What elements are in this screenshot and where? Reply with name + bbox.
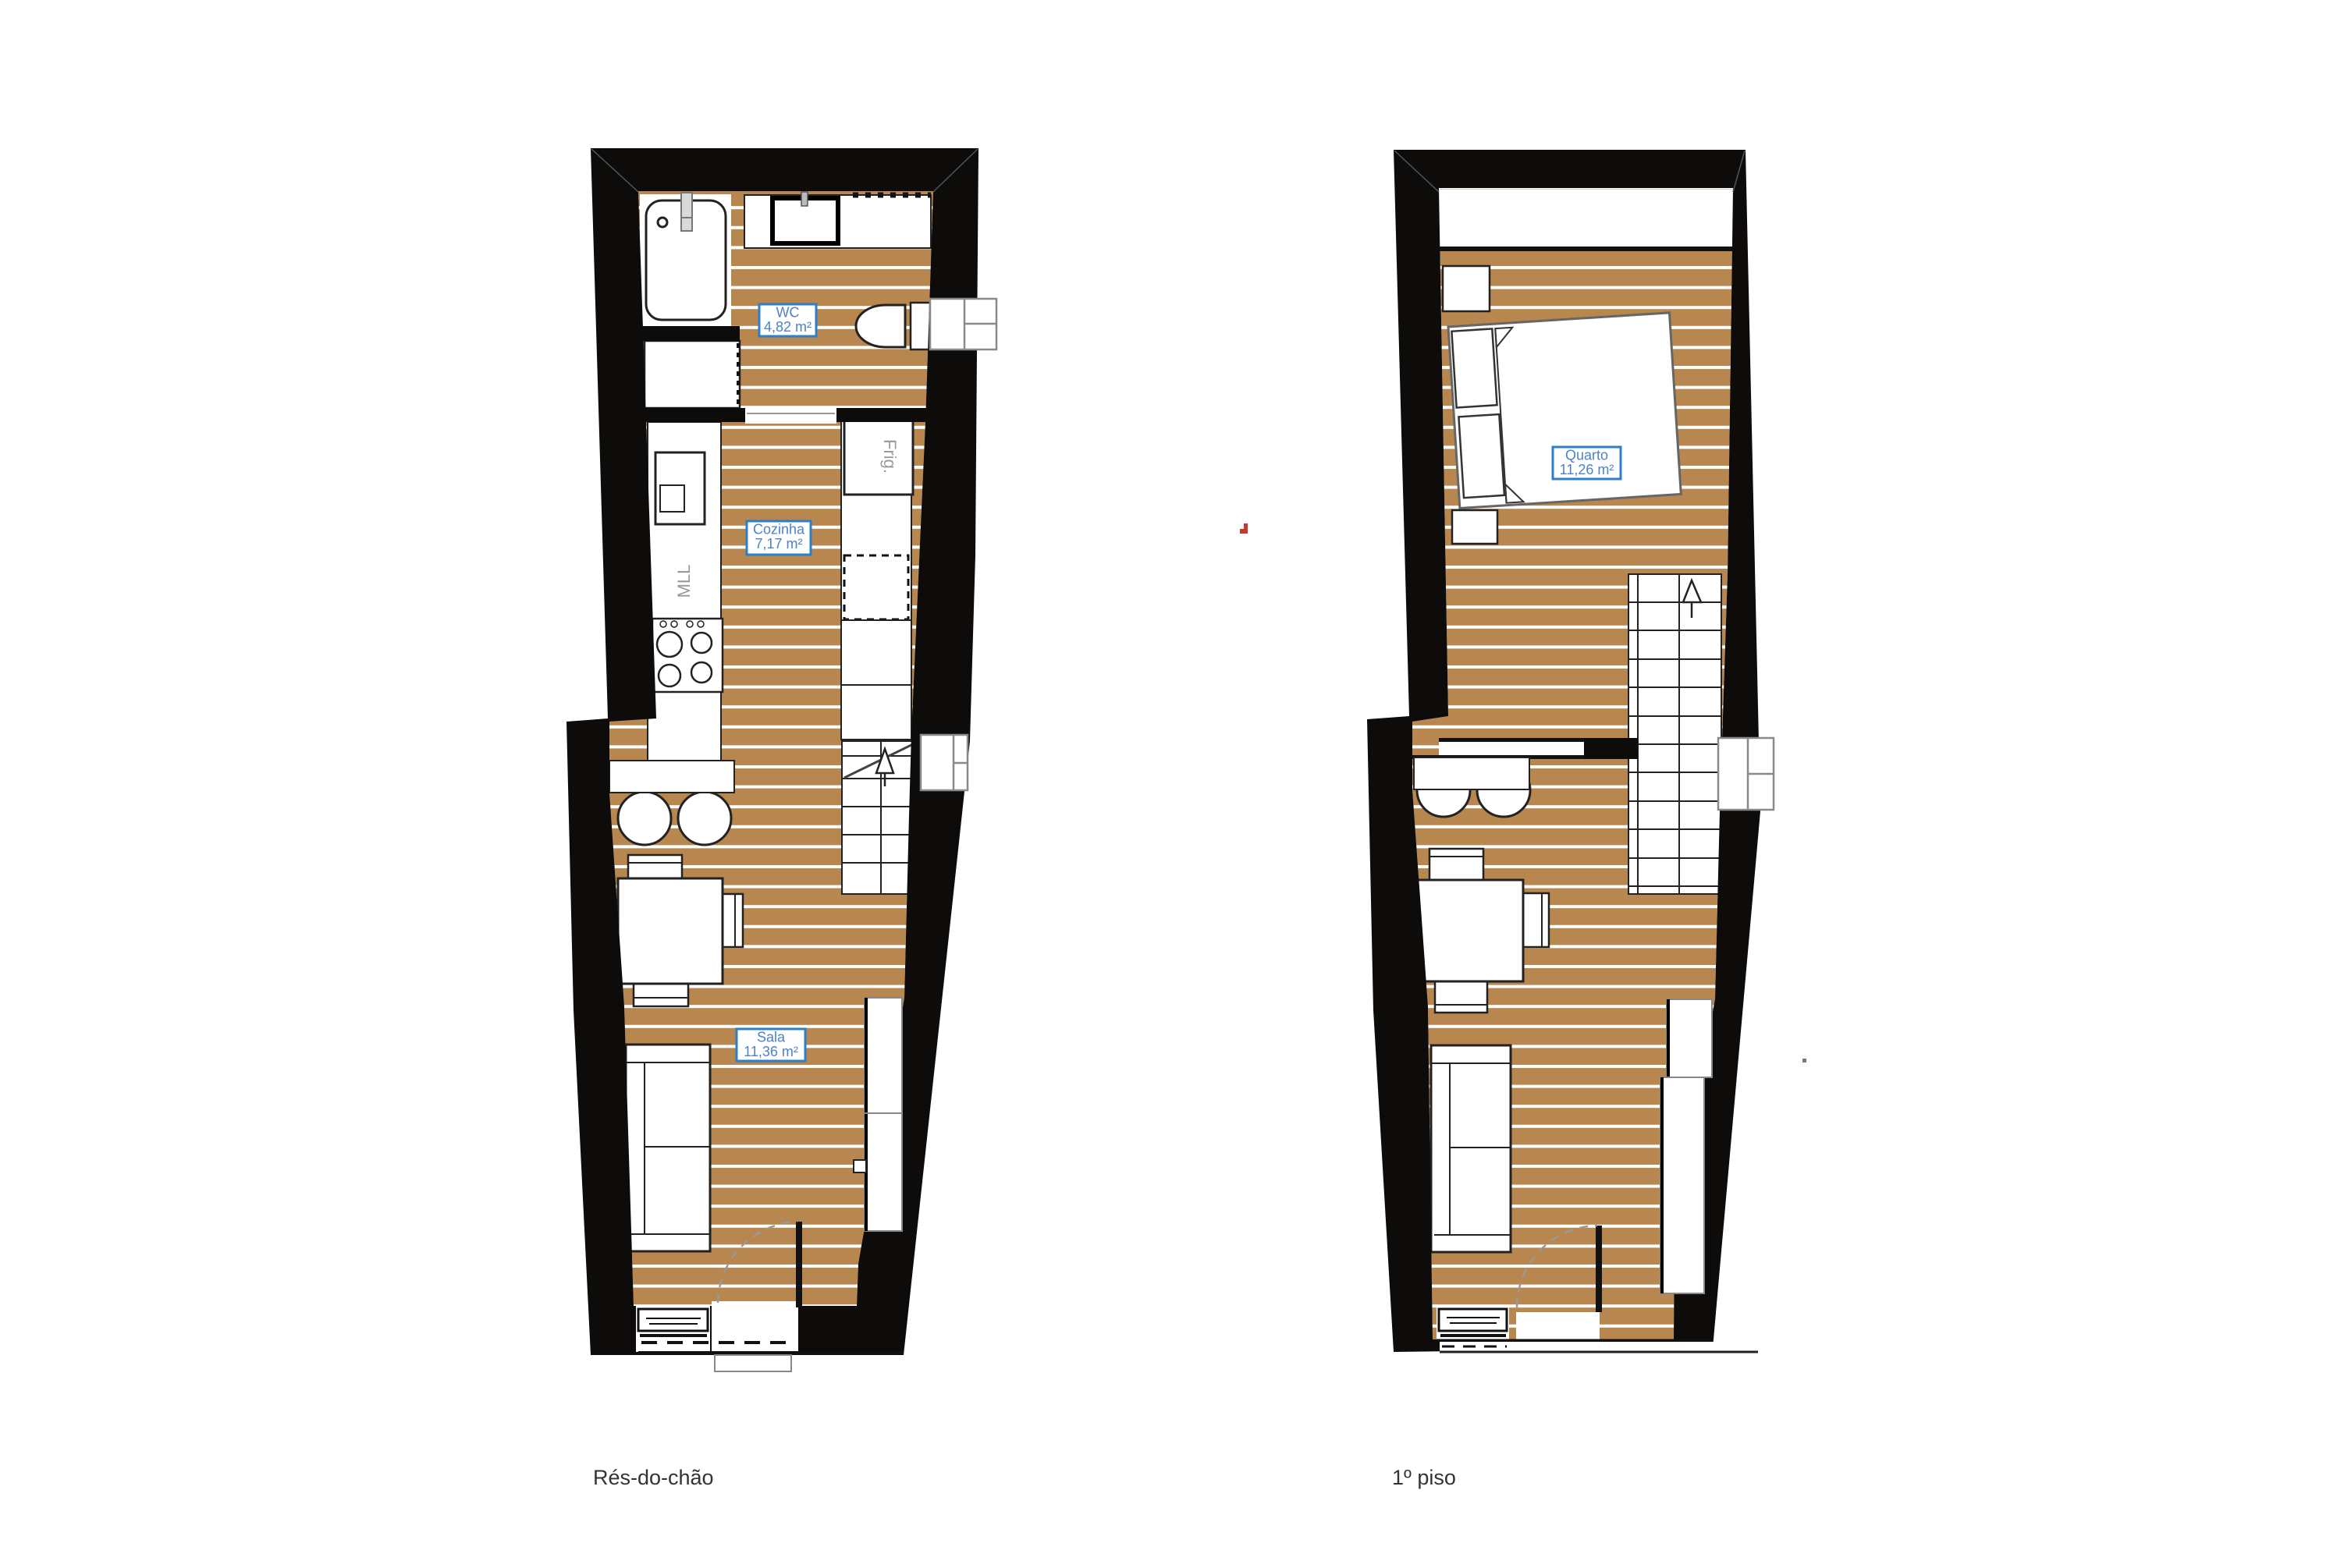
svg-text:7,17 m²: 7,17 m² xyxy=(755,536,802,552)
svg-text:1º piso: 1º piso xyxy=(1392,1466,1456,1489)
svg-text:Cozinha: Cozinha xyxy=(753,522,805,537)
svg-text:4,82 m²: 4,82 m² xyxy=(764,319,812,335)
svg-text:Quarto: Quarto xyxy=(1565,448,1608,463)
svg-text:11,36 m²: 11,36 m² xyxy=(744,1044,798,1059)
svg-text:Frig.: Frig. xyxy=(880,439,900,474)
svg-text:WC: WC xyxy=(776,305,800,321)
svg-text:MLL: MLL xyxy=(674,565,694,598)
svg-text:Rés-do-chão: Rés-do-chão xyxy=(593,1466,714,1489)
svg-text:Sala: Sala xyxy=(757,1030,786,1045)
svg-text:11,26 m²: 11,26 m² xyxy=(1560,462,1614,477)
